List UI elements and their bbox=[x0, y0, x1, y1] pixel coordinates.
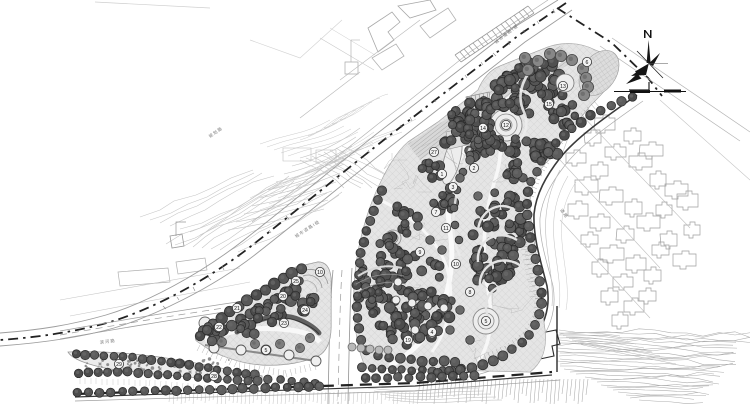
svg-text:27: 27 bbox=[431, 150, 437, 156]
svg-text:28: 28 bbox=[211, 374, 217, 380]
svg-text:7: 7 bbox=[435, 210, 438, 216]
svg-text:6: 6 bbox=[586, 60, 589, 66]
svg-text:23: 23 bbox=[281, 321, 287, 327]
svg-text:13: 13 bbox=[560, 84, 566, 90]
svg-text:15: 15 bbox=[546, 102, 552, 108]
svg-text:21: 21 bbox=[234, 306, 240, 312]
svg-text:9: 9 bbox=[419, 250, 422, 256]
svg-text:8: 8 bbox=[469, 290, 472, 296]
svg-text:24: 24 bbox=[302, 308, 308, 314]
svg-text:5: 5 bbox=[485, 319, 488, 325]
svg-text:14: 14 bbox=[480, 126, 486, 132]
svg-text:1: 1 bbox=[441, 172, 444, 178]
svg-text:20: 20 bbox=[280, 294, 286, 300]
svg-text:11: 11 bbox=[443, 226, 448, 232]
svg-text:12: 12 bbox=[503, 123, 509, 129]
svg-text:10: 10 bbox=[317, 270, 323, 276]
svg-text:3: 3 bbox=[452, 185, 455, 191]
svg-text:4: 4 bbox=[431, 330, 434, 336]
svg-text:2: 2 bbox=[473, 166, 476, 172]
svg-text:22: 22 bbox=[216, 325, 222, 331]
svg-text:5: 5 bbox=[265, 348, 268, 354]
svg-text:19: 19 bbox=[405, 338, 411, 344]
svg-text:29: 29 bbox=[116, 362, 122, 368]
svg-text:10: 10 bbox=[453, 262, 459, 268]
svg-text:25: 25 bbox=[293, 279, 299, 285]
